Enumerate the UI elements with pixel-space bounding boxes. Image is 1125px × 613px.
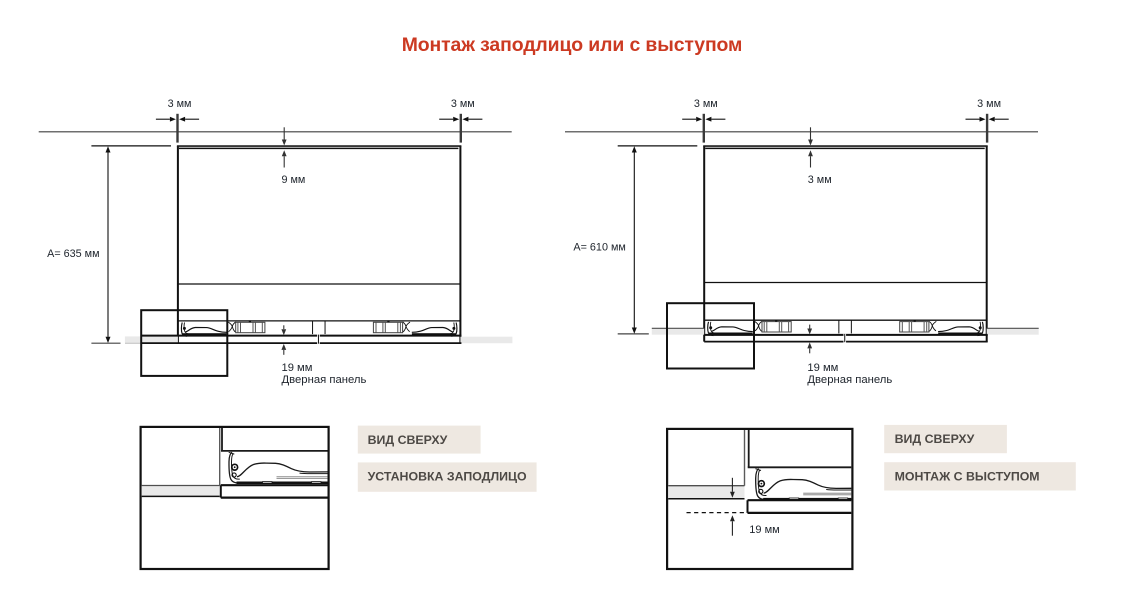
svg-text:УСТАНОВКА ЗАПОДЛИЦО: УСТАНОВКА ЗАПОДЛИЦО [368, 470, 527, 484]
svg-text:ВИД СВЕРХУ: ВИД СВЕРХУ [368, 433, 448, 447]
svg-text:9 мм: 9 мм [282, 174, 306, 186]
svg-text:3 мм: 3 мм [168, 98, 192, 110]
svg-text:3 мм: 3 мм [451, 98, 475, 110]
svg-text:3 мм: 3 мм [977, 98, 1001, 110]
svg-text:МОНТАЖ С ВЫСТУПОМ: МОНТАЖ С ВЫСТУПОМ [895, 469, 1040, 483]
svg-text:19 мм: 19 мм [749, 524, 779, 536]
svg-text:ВИД СВЕРХУ: ВИД СВЕРХУ [895, 432, 975, 446]
svg-text:A= 635 мм: A= 635 мм [47, 248, 99, 260]
svg-text:Дверная панель: Дверная панель [282, 374, 367, 386]
svg-text:19 мм: 19 мм [282, 362, 313, 374]
svg-text:A= 610 мм: A= 610 мм [573, 242, 625, 254]
svg-text:3 мм: 3 мм [808, 174, 832, 186]
svg-text:Дверная панель: Дверная панель [807, 374, 892, 386]
svg-text:19 мм: 19 мм [807, 362, 838, 374]
svg-text:Монтаж заподлицо или с выступо: Монтаж заподлицо или с выступом [402, 34, 743, 56]
svg-text:3 мм: 3 мм [694, 98, 718, 110]
